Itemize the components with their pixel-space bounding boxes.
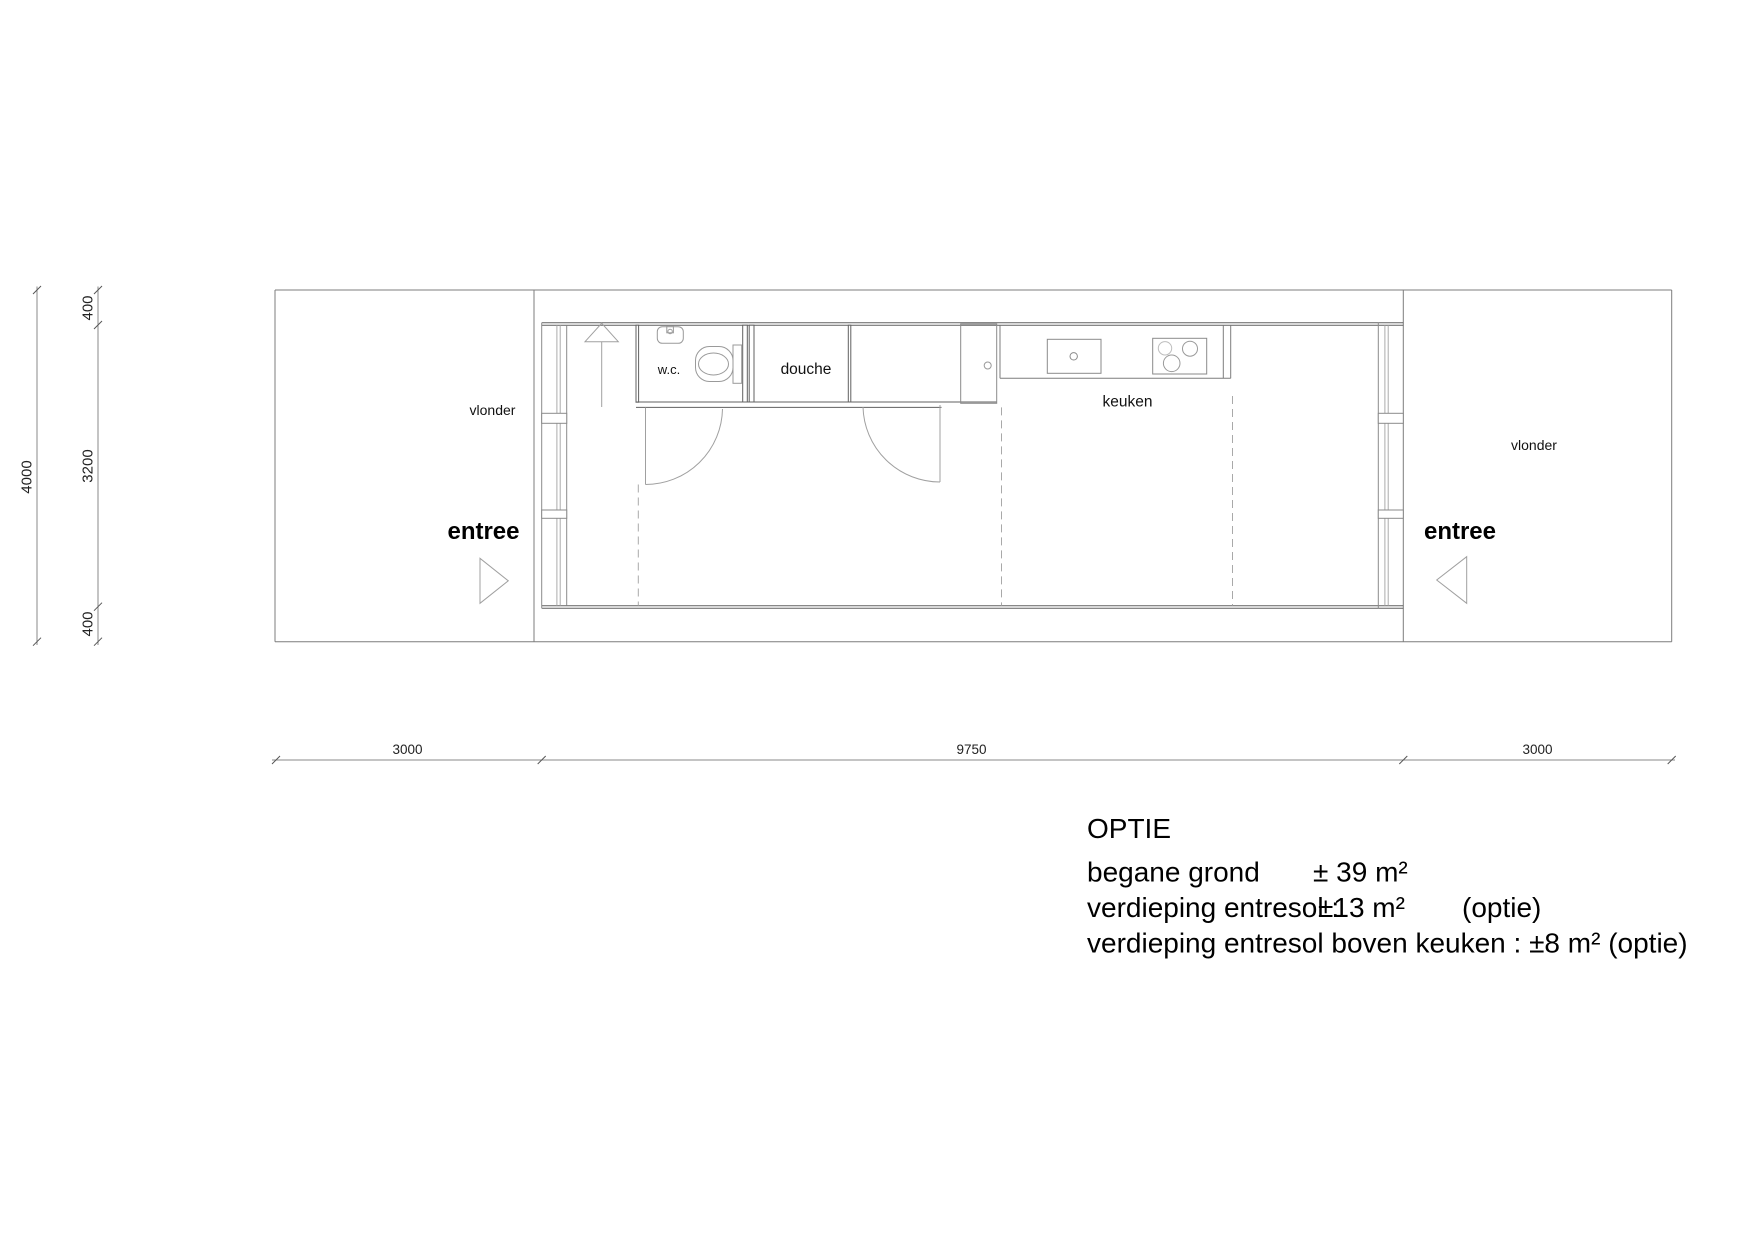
room-label-douche: douche [781,361,832,378]
toilet-bowl [696,347,734,382]
toilet-cistern [733,345,742,383]
mullion [1378,413,1403,423]
drawing-canvas: vlonder vlonder entree entree w.c. douch… [0,0,1754,1240]
door-swing-right [863,405,940,482]
area-label-entree-right: entree [1424,518,1496,545]
legend-title: OPTIE [1087,813,1171,844]
entry-arrow-icon [585,323,618,407]
kitchen-counter [1000,325,1231,378]
dim-horizontal-left: 3000 [392,742,422,757]
legend-row-1-label: begane grond [1087,857,1260,888]
dim-vertical-seg-mid: 3200 [80,449,97,482]
mullion [1378,510,1403,518]
wc-left-wall [636,325,639,402]
washbasin-icon [657,326,683,344]
glass-wall-right [1378,323,1403,609]
toilet-icon [696,345,742,383]
entree-arrow-left-icon [480,558,508,603]
area-label-vlonder-left: vlonder [470,402,516,418]
room-label-wc: w.c. [657,362,680,377]
boiler-icon [984,362,991,369]
mullion [542,413,567,423]
entree-arrow-right-icon [1437,557,1467,604]
room-label-keuken: keuken [1103,394,1153,411]
mullion [542,510,567,518]
sink-icon [1047,339,1101,373]
dim-vertical-seg-bottom: 400 [80,611,97,636]
hob-icon [1153,338,1207,374]
dim-vertical-seg-top: 400 [80,295,97,320]
glass-wall-left [542,323,567,609]
dim-vertical-total: 4000 [19,460,36,493]
area-label-entree-left: entree [447,518,519,545]
wc-douche-partition [743,325,748,402]
plan-envelope [275,290,1672,642]
closet-block [961,324,997,403]
dimension-line-horizontal [272,756,1676,764]
legend-row-1-value: ± 39 m² [1313,857,1408,888]
legend-row-3-label: verdieping entresol boven keuken : ±8 m²… [1087,928,1688,959]
legend-row-2-label: verdieping entresol : [1087,892,1339,923]
entresol-outline-dashed [638,396,1232,606]
area-label-vlonder-right: vlonder [1511,437,1557,453]
wc-douche-partition [749,325,754,402]
legend-row-2-note: (optie) [1462,892,1541,923]
door-swing-left [646,407,723,484]
dim-horizontal-mid: 9750 [956,742,986,757]
douche-right-wall [848,325,851,402]
dim-horizontal-right: 3000 [1522,742,1552,757]
legend-block: OPTIE begane grond ± 39 m² verdieping en… [1087,813,1688,959]
legend-row-2-value: ±13 m² [1318,892,1405,923]
floor-plan-svg: vlonder vlonder entree entree w.c. douch… [0,0,1754,1240]
